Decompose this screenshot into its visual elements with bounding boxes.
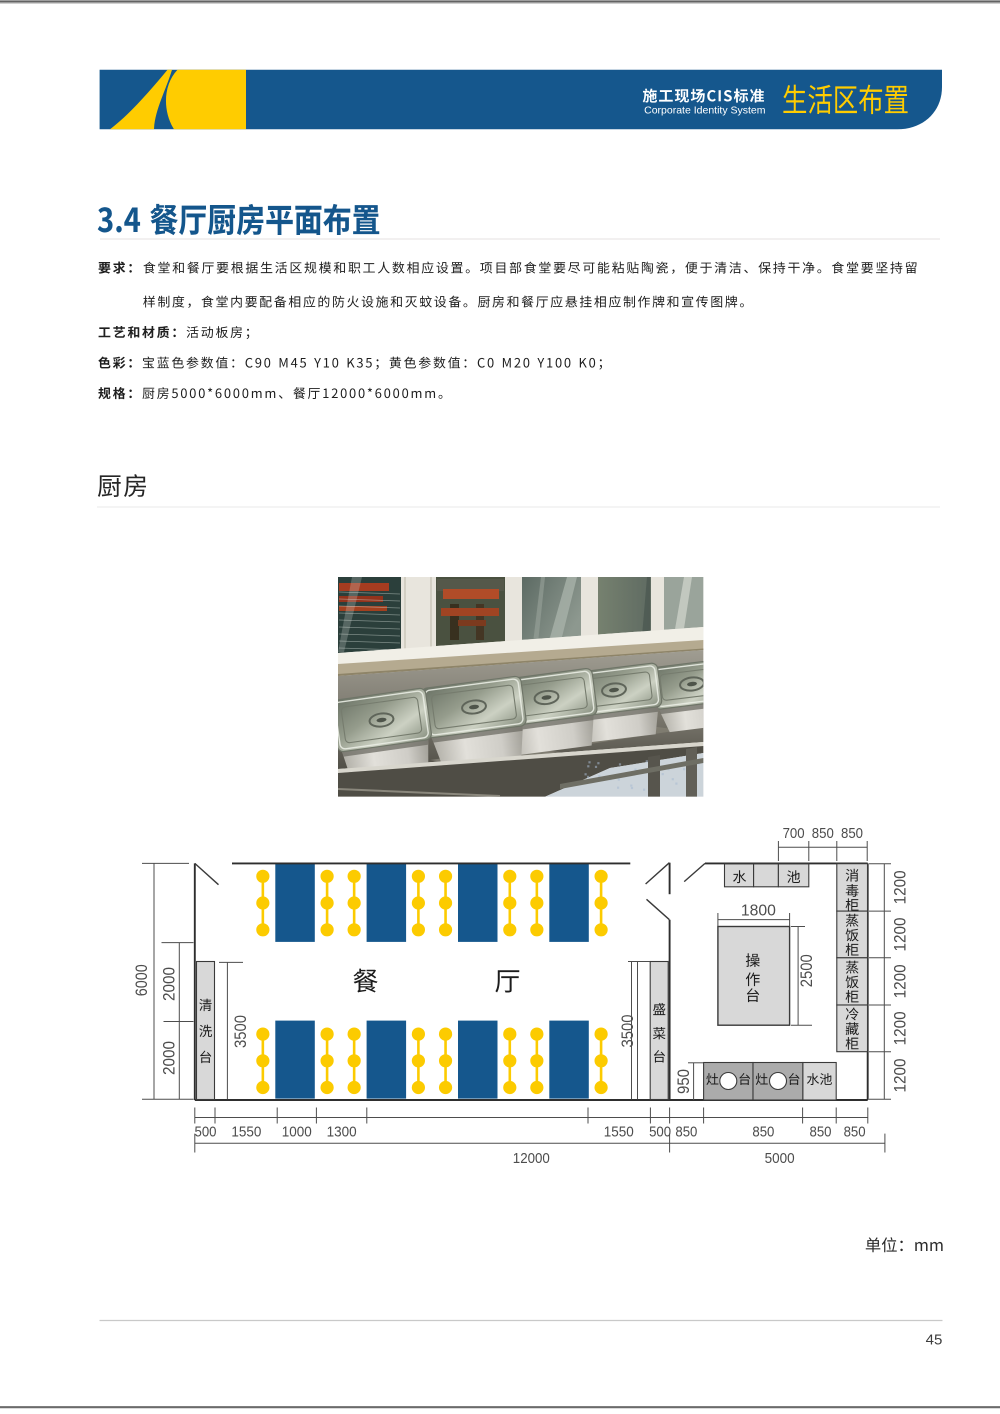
svg-text:12000: 12000 xyxy=(513,1150,550,1167)
svg-text:1550: 1550 xyxy=(604,1124,634,1141)
svg-text:3500: 3500 xyxy=(619,1015,637,1048)
svg-text:700: 700 xyxy=(783,825,805,842)
svg-text:1200: 1200 xyxy=(891,1011,909,1045)
svg-text:Corporate Identity System: Corporate Identity System xyxy=(644,105,766,117)
svg-text:5000: 5000 xyxy=(765,1150,795,1167)
svg-text:1200: 1200 xyxy=(891,964,909,998)
svg-text:500: 500 xyxy=(649,1124,671,1141)
svg-text:1200: 1200 xyxy=(891,870,909,904)
svg-text:45: 45 xyxy=(926,1332,943,1349)
svg-text:1800: 1800 xyxy=(741,903,776,920)
svg-text:850: 850 xyxy=(844,1124,866,1141)
svg-text:3500: 3500 xyxy=(232,1015,250,1048)
svg-text:1000: 1000 xyxy=(282,1124,312,1141)
svg-text:850: 850 xyxy=(752,1124,774,1141)
svg-text:2000: 2000 xyxy=(161,1041,179,1075)
svg-text:850: 850 xyxy=(810,1124,832,1141)
svg-text:500: 500 xyxy=(195,1124,217,1141)
svg-text:2000: 2000 xyxy=(161,967,179,1001)
svg-text:850: 850 xyxy=(841,825,863,842)
svg-text:1550: 1550 xyxy=(231,1124,261,1141)
svg-text:1300: 1300 xyxy=(327,1124,357,1141)
svg-text:2500: 2500 xyxy=(798,954,816,987)
svg-text:1200: 1200 xyxy=(891,918,909,952)
svg-text:6000: 6000 xyxy=(133,964,151,996)
svg-text:850: 850 xyxy=(812,825,834,842)
svg-text:1200: 1200 xyxy=(891,1059,909,1093)
svg-text:850: 850 xyxy=(675,1124,697,1141)
svg-text:950: 950 xyxy=(675,1069,693,1094)
